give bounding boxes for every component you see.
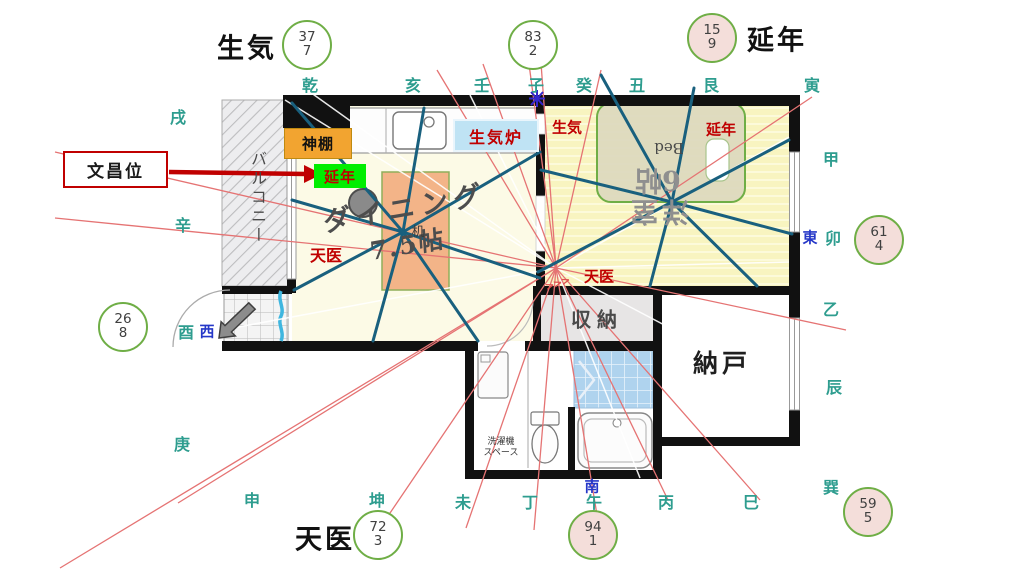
callout-box: 文昌位 (63, 151, 168, 188)
compass-char-qian: 乾 (302, 72, 318, 96)
ennen-red-label: 延年 (706, 119, 736, 140)
feng-shui-floor-plan: 生気 延年 天医 文昌位 377 832 159 614 268 723 941… (0, 0, 1024, 576)
compass-char-gui: 癸 (576, 72, 592, 96)
compass-char-xun: 巽 (823, 474, 839, 498)
compass-char-jia: 甲 (823, 146, 839, 170)
number-circle-nw: 377 (282, 20, 332, 70)
bed-label: Bed (654, 139, 684, 157)
number-circle-e: 614 (854, 215, 904, 265)
compass-char-xu: 戌 (170, 104, 186, 128)
shower-tiles (574, 351, 653, 408)
number-circle-w: 268 (98, 302, 148, 352)
callout-label: 文昌位 (87, 157, 144, 182)
toilet (531, 412, 559, 463)
number-circle-ne: 159 (687, 13, 737, 63)
compass-char-kun: 坤 (369, 487, 385, 511)
cardinal-west: 西 (199, 321, 214, 342)
compass-char-geng: 庚 (174, 431, 190, 455)
balcony-label: バルコニー (245, 151, 269, 246)
compass-char-ren: 壬 (474, 72, 490, 96)
compass-char-you: 酉 (178, 319, 194, 343)
laundry-space-label: 洗濯機 スペース (484, 437, 519, 460)
compass-char-xin: 辛 (175, 212, 191, 236)
compass-char-gen: 艮 (703, 72, 719, 96)
compass-char-shen: 申 (244, 487, 260, 511)
compass-char-wei: 未 (455, 489, 471, 513)
fortune-label-top-left: 生気 (217, 27, 277, 66)
compass-char-yi: 乙 (823, 296, 839, 320)
cardinal-south: 南 (584, 476, 599, 497)
desk-label: 机 (407, 225, 426, 238)
tenni-center-label: 天医 (584, 266, 614, 287)
compass-char-si: 巳 (743, 489, 759, 513)
western-room-label: 洋室 6帖 (627, 164, 689, 226)
compass-char-ding: 丁 (522, 489, 538, 513)
closet-label: 収納 (571, 304, 623, 333)
fortune-label-bottom-left: 天医 (295, 518, 355, 557)
entrance-curtain (280, 291, 282, 341)
kamidana-label: 神棚 (284, 128, 352, 159)
number-circle-n: 832 (508, 20, 558, 70)
seiki-stove-label: 生気炉 (453, 119, 539, 152)
compass-char-chen: 辰 (826, 374, 842, 398)
cardinal-east: 東 (802, 227, 817, 248)
compass-char-hai: 亥 (405, 72, 421, 96)
compass-char-mao: 卯 (825, 225, 841, 249)
compass-char-yin: 寅 (804, 72, 820, 96)
seiki-red-label: 生気 (552, 117, 582, 138)
compass-char-zi: 子 (528, 72, 544, 96)
washing-machine (478, 352, 508, 398)
number-circle-s: 941 (568, 510, 618, 560)
compass-char-chou: 丑 (629, 72, 645, 96)
fortune-label-top-right: 延年 (747, 19, 807, 58)
compass-char-bing: 丙 (658, 489, 674, 513)
storage-label: 納戸 (693, 344, 751, 380)
ennen-green-label: 延年 (314, 164, 366, 188)
number-circle-se: 595 (843, 487, 893, 537)
number-circle-sw: 723 (353, 510, 403, 560)
bathtub (578, 413, 652, 468)
